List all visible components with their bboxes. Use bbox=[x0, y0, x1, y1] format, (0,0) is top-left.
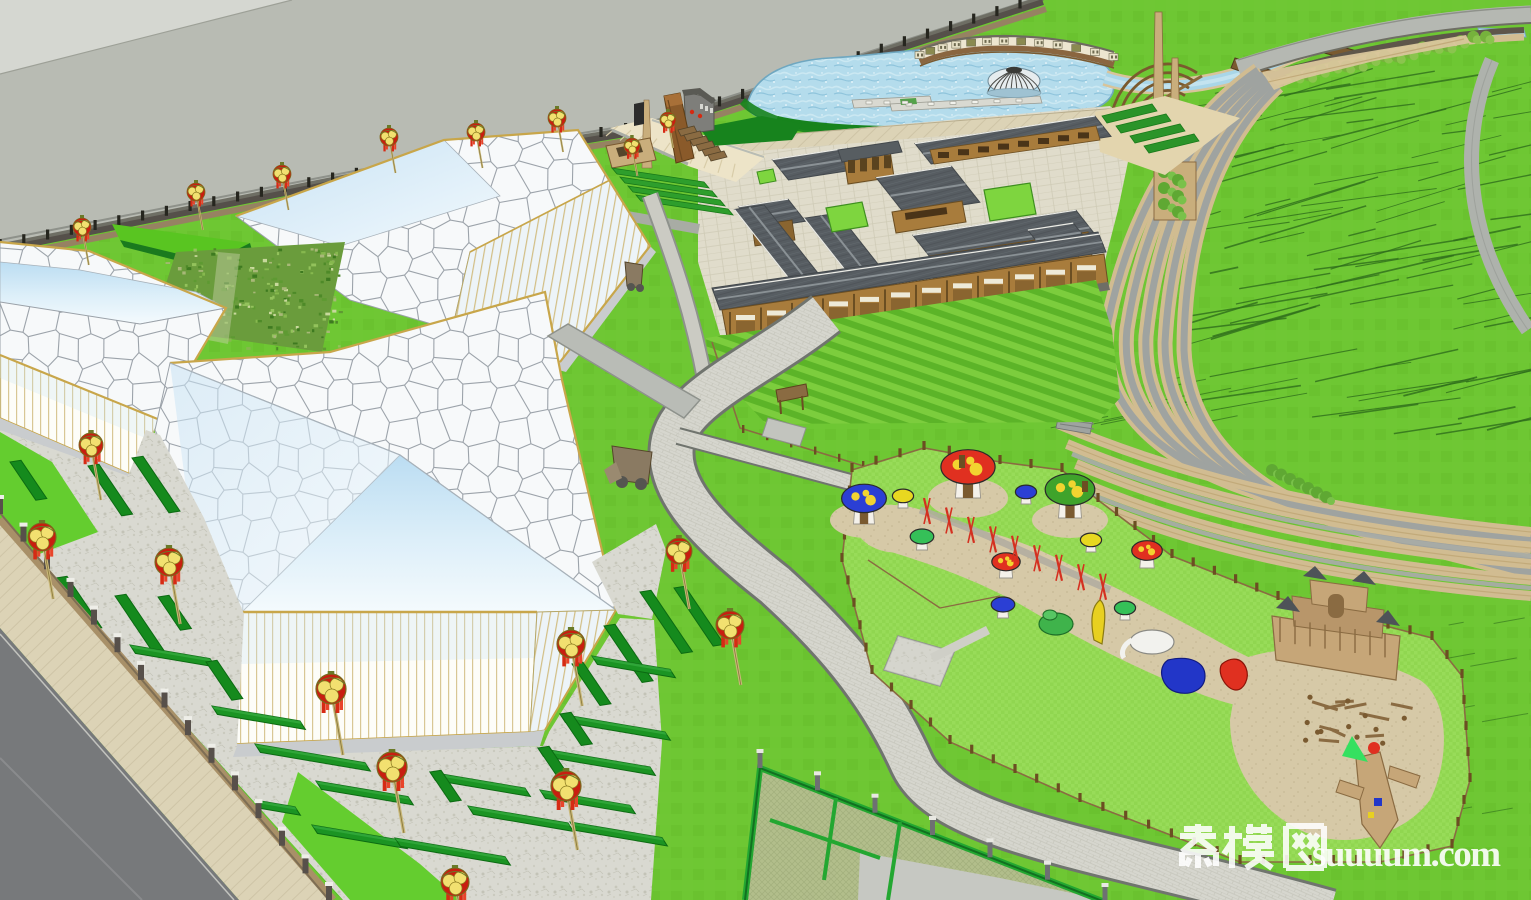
svg-text:suuuum.com: suuuum.com bbox=[1312, 834, 1501, 875]
